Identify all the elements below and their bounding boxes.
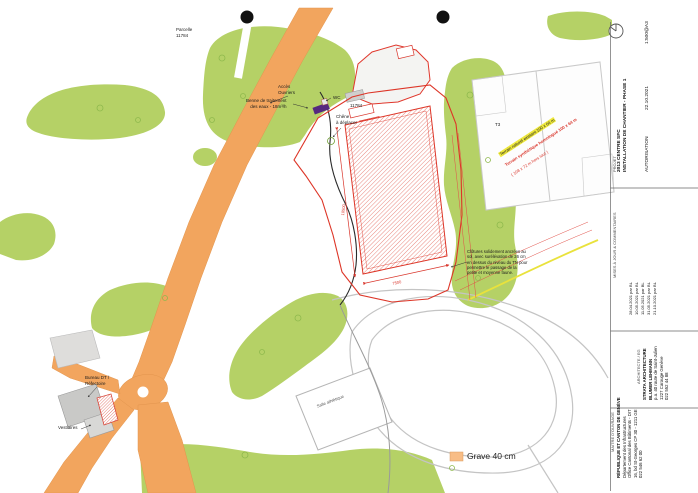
punch-hole-right — [437, 11, 450, 24]
tb-project-subtitle: INSTALLATION DE CHANTIER - PHASE 1 — [623, 52, 628, 172]
tb-maitre-line: RÉPUBLIQUE ET CANTON DE GENÈVE — [616, 402, 621, 478]
tb-date: 22.10.2021 — [645, 60, 650, 110]
label-chene: Chêne à déplacer — [336, 114, 357, 125]
tb-maitre-line: Office Cantonal des Bâtiments - DIT — [627, 402, 632, 478]
label-wc: WC — [333, 95, 341, 101]
tb-architecte-line: BLUMER LEHMANN — [648, 328, 653, 400]
tb-revision-entry: 11.05.2021 par BL — [640, 259, 645, 315]
tb-revision-entry: 31.05.2021 par BL — [646, 259, 651, 315]
label-parcelle: Parcelle 11784 — [176, 27, 192, 38]
tb-scale: 1:500@A3 — [645, 4, 650, 44]
tb-maitre-line: 022 546 62 00 — [638, 402, 643, 478]
label-benne: Benne de traitement des eaux - 18m³/h — [246, 98, 287, 109]
tb-architecte-line: 1227 Carouge Genève — [659, 328, 664, 400]
label-parcel-number: 11784 — [350, 103, 362, 109]
tb-architecte-label: ARCHITECTE / EG — [636, 332, 641, 384]
sports-field-outline — [472, 62, 614, 210]
tb-mises-label: MISES À JOUR & COMMENTAIRES — [612, 188, 617, 278]
salle-athletique-building — [296, 368, 392, 450]
tb-status: AUTORISATION — [645, 117, 650, 172]
wc-container — [321, 98, 328, 105]
tb-architecte-line: STRATA ARCHITECTURE — [642, 328, 647, 400]
tb-revision-entry: 21.10.2021 par BL — [652, 259, 657, 315]
legend-grave-label: Grave 40 cm — [467, 451, 516, 461]
tb-architecte-line: p.a. 40 route de Saint-Julien — [653, 328, 658, 400]
tb-maitre-line: 16, bd St-Georges CP 30 - 1211 GE — [633, 402, 638, 478]
roundabout-center — [138, 387, 149, 398]
tb-architecte-line: 022 552 44 88 — [664, 328, 669, 400]
tb-maitre-label: MAITRE D'OUVRAGE — [610, 390, 615, 452]
punch-hole-left — [241, 11, 254, 24]
tb-maitre-line: Département des Infrastructures — [622, 402, 627, 478]
construction-area-hatched — [345, 106, 447, 274]
chene-tree — [328, 138, 335, 145]
north-arrow-icon — [609, 24, 623, 39]
label-bureau-dt: Bureau DT / Réfectoire — [85, 375, 109, 386]
note-clotures: Clôtures solidement ancrées au sol, avec… — [467, 249, 549, 275]
site-plan-drawing — [0, 0, 698, 493]
tb-revision-entry: 10.05.2021 par BL — [634, 259, 639, 315]
tb-project-name: 2013 CENTRE SFC — [617, 52, 622, 172]
label-t3: T3 — [495, 122, 500, 128]
tb-revision-entry: 28.04.2021 par BL — [628, 259, 633, 315]
label-acces-ouvriers: Accès Ouvriers — [278, 84, 295, 95]
plan-sheet: Parcelle 11784 Accès Ouvriers Benne de t… — [0, 0, 698, 493]
legend-grave-swatch — [450, 452, 463, 461]
label-vestiaires: Vestiaires — [58, 425, 78, 431]
